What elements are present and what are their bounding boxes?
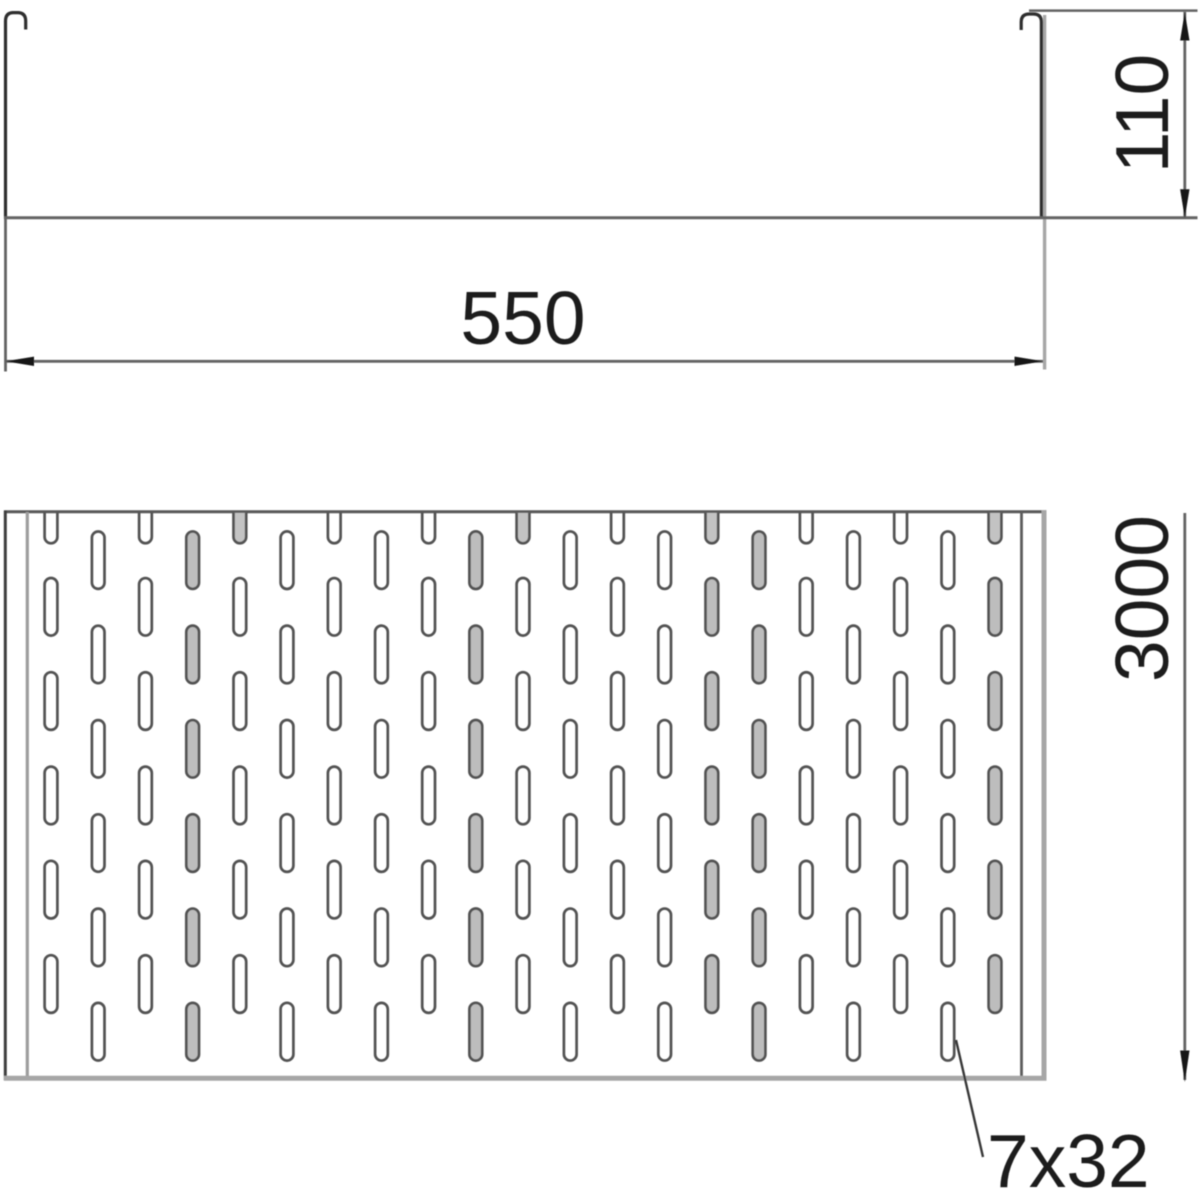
svg-text:110: 110	[1100, 54, 1184, 174]
svg-text:7x32: 7x32	[987, 1119, 1150, 1200]
svg-text:550: 550	[460, 276, 585, 360]
svg-text:3000: 3000	[1100, 515, 1184, 682]
